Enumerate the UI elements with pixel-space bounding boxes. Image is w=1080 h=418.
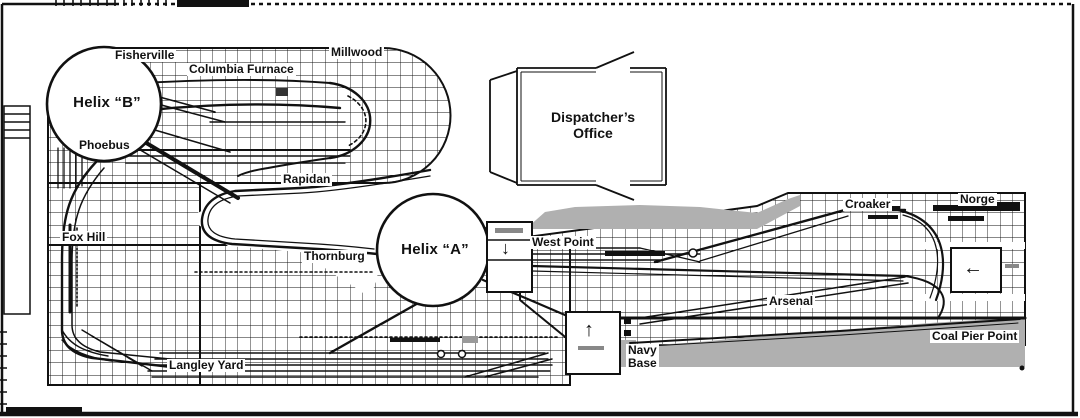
top-ruler-bar — [177, 0, 249, 7]
label-coal-pier-point: Coal Pier Point — [930, 330, 1019, 343]
label-dispatchers-office: Dispatcher’s Office — [525, 110, 661, 141]
down-arrow-icon: ↓ — [501, 239, 510, 257]
track-plan-drawing — [0, 0, 1080, 418]
label-rapidan: Rapidan — [281, 173, 332, 186]
left-arrow-icon: ← — [963, 258, 983, 278]
label-fisherville: Fisherville — [113, 49, 176, 62]
up-arrow-icon: ↑ — [584, 320, 594, 340]
label-fox-hill: Fox Hill — [60, 231, 107, 244]
label-navy-base-line1: Navy — [628, 343, 657, 357]
stairs — [4, 106, 30, 314]
label-helix-b: Helix “B” — [59, 95, 155, 112]
bottom-left-bar — [6, 407, 82, 412]
label-dispatchers-office-line2: Office — [573, 125, 613, 141]
label-columbia-furnace: Columbia Furnace — [187, 63, 296, 76]
label-navy-base: Navy Base — [626, 344, 659, 371]
label-dispatchers-office-line1: Dispatcher’s — [551, 109, 635, 125]
label-croaker: Croaker — [843, 198, 892, 211]
label-phoebus: Phoebus — [77, 139, 132, 152]
label-arsenal: Arsenal — [767, 295, 815, 308]
label-millwood: Millwood — [329, 46, 384, 59]
label-norge: Norge — [958, 193, 997, 206]
label-langley-yard: Langley Yard — [167, 359, 245, 372]
label-helix-a: Helix “A” — [387, 242, 483, 259]
track-plan-figure: Fisherville Columbia Furnace Millwood He… — [0, 0, 1080, 418]
label-navy-base-line2: Base — [628, 356, 657, 370]
label-west-point: West Point — [530, 236, 596, 249]
label-thornburg: Thornburg — [302, 250, 367, 263]
